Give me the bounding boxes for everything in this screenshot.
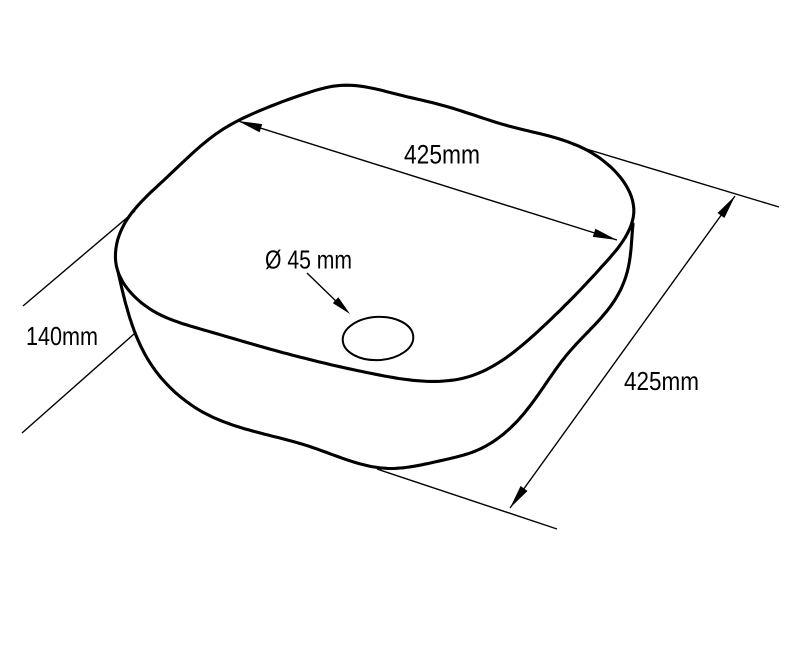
svg-text:425mm: 425mm: [624, 366, 699, 396]
svg-text:Ø 45 mm: Ø 45 mm: [265, 245, 352, 275]
svg-text:140mm: 140mm: [26, 321, 98, 351]
svg-text:425mm: 425mm: [404, 140, 480, 170]
